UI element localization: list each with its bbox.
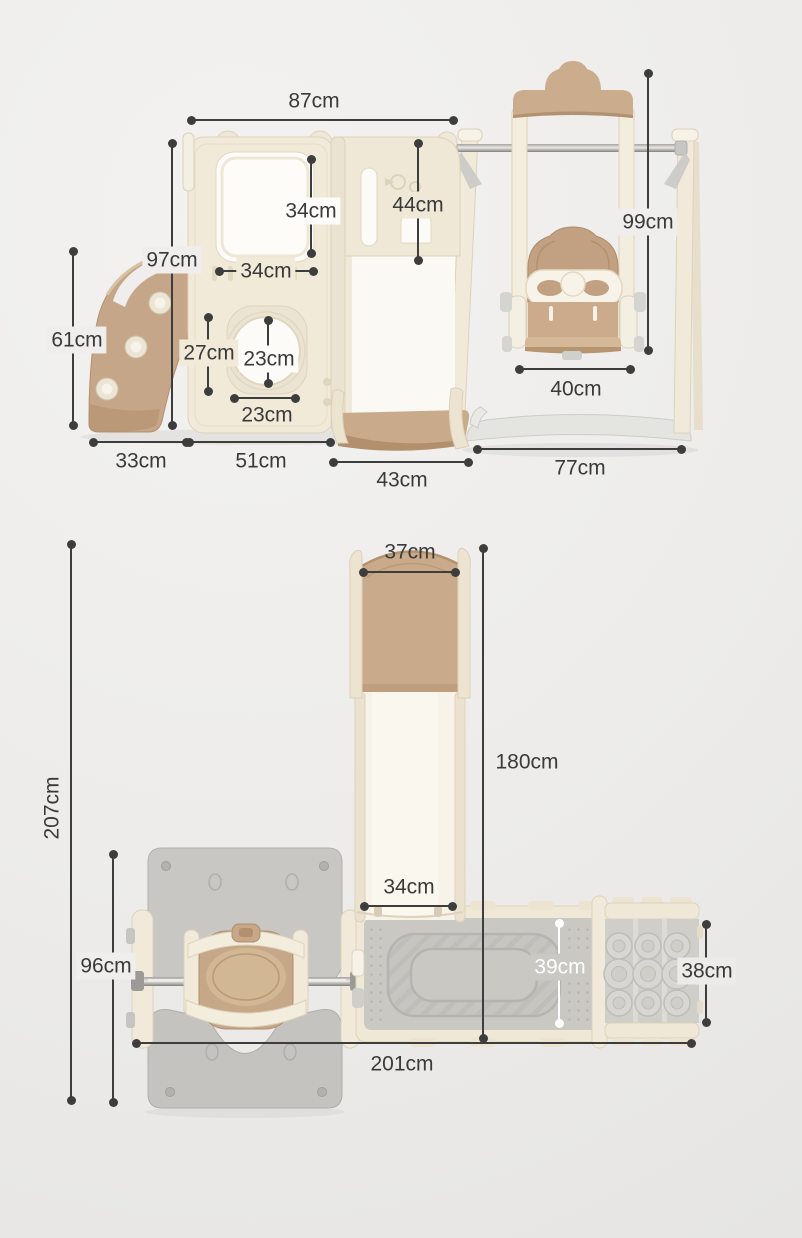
- dim-label-house-base-width: 51cm: [231, 448, 290, 475]
- dim-label-hole-top-offset: 27cm: [179, 340, 238, 367]
- dim-label-hole-height: 23cm: [239, 346, 298, 373]
- dim-label-slide-top-width: 37cm: [380, 539, 439, 566]
- bridge-section: [331, 132, 469, 451]
- dim-label-platform-width: 43cm: [372, 467, 431, 494]
- product-dimension-diagram: 87cm 97cm 61cm 34cm 34cm 44cm 27cm 23cm …: [0, 0, 802, 1238]
- steering-hub: [561, 272, 585, 296]
- slide-top-view: [350, 548, 471, 922]
- dim-label-mat-depth: 39cm: [530, 954, 589, 981]
- dim-line-hole-width: [233, 397, 297, 399]
- dim-line-house-top-width: [190, 119, 455, 121]
- dim-line-total-width: [135, 1042, 693, 1044]
- dim-line-platform-width: [332, 461, 470, 463]
- dim-label-slide-base-width: 33cm: [111, 448, 170, 475]
- dim-label-swing-seat-width: 40cm: [546, 376, 605, 403]
- dim-line-house-base-width: [188, 441, 332, 443]
- dim-line-slide-top-width: [362, 571, 457, 573]
- dim-label-mid-panel-height: 44cm: [388, 192, 447, 219]
- swing-floor-rail: [467, 407, 691, 441]
- dim-label-swing-height: 99cm: [618, 209, 677, 236]
- swing-crossbar: [445, 141, 690, 189]
- dim-label-swing-base-width: 77cm: [550, 455, 609, 482]
- dim-label-slide-end-width: 34cm: [379, 874, 438, 901]
- dim-label-climber-depth: 38cm: [677, 958, 736, 985]
- dim-line-slide-end-width: [363, 905, 454, 907]
- dim-label-slide-length: 180cm: [491, 749, 562, 776]
- dim-line-swing-base-width: [476, 448, 683, 450]
- dim-label-house-height: 97cm: [142, 247, 201, 274]
- dim-label-house-top-width: 87cm: [284, 88, 343, 115]
- slot-window: [361, 168, 377, 246]
- dim-line-slide-base-width: [92, 441, 188, 443]
- swing-seat-top: [184, 924, 308, 1029]
- dim-label-window-height: 34cm: [281, 198, 340, 225]
- top-view: [126, 548, 703, 1118]
- dim-line-slide-length: [482, 547, 484, 1040]
- dim-label-total-width: 201cm: [366, 1051, 437, 1078]
- swing-cloud-topper: [513, 61, 633, 118]
- dim-label-swing-footprint-depth: 96cm: [76, 953, 135, 980]
- dim-label-total-length: 207cm: [39, 772, 66, 843]
- dim-line-swing-seat-width: [518, 368, 632, 370]
- dim-line-house-height: [171, 142, 173, 427]
- dim-label-slide-height: 61cm: [47, 327, 106, 354]
- dim-line-total-length: [70, 543, 72, 1102]
- dim-label-hole-width: 23cm: [237, 402, 296, 429]
- dim-label-window-width: 34cm: [236, 258, 295, 285]
